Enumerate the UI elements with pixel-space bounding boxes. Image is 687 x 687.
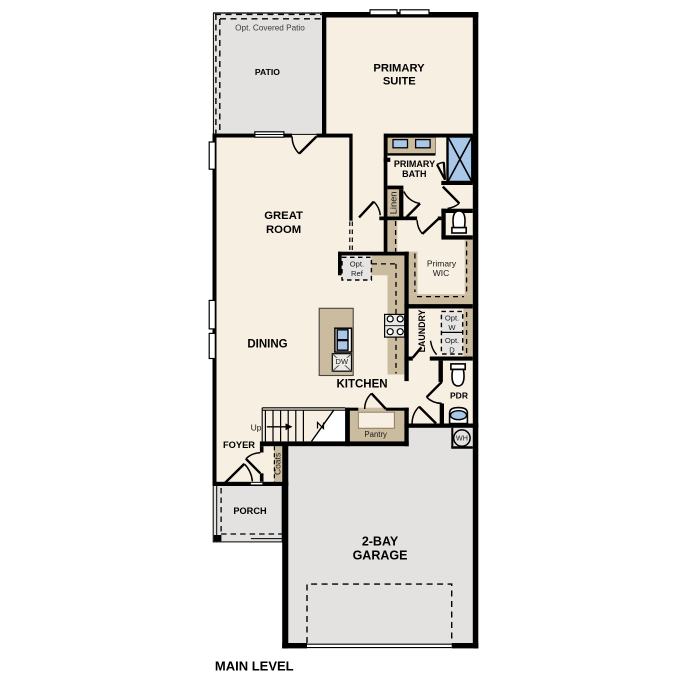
svg-text:Pantry: Pantry [364,430,387,439]
svg-text:2-BAY: 2-BAY [362,535,399,549]
svg-text:WIC: WIC [433,268,450,278]
svg-text:Linen: Linen [388,192,398,215]
svg-text:FOYER: FOYER [223,440,255,450]
svg-text:PORCH: PORCH [233,506,267,516]
svg-text:KITCHEN: KITCHEN [336,378,387,390]
svg-text:Coats: Coats [272,453,282,475]
svg-text:Opt.: Opt. [350,260,364,269]
svg-text:D: D [449,345,455,354]
svg-text:Opt.: Opt. [445,314,459,323]
svg-text:ROOM: ROOM [266,224,301,236]
svg-text:PATIO: PATIO [255,67,280,77]
svg-text:PRIMARY: PRIMARY [394,159,435,169]
svg-text:Opt. Covered Patio: Opt. Covered Patio [235,24,305,33]
svg-text:Up: Up [251,423,262,433]
svg-text:PDR: PDR [450,390,468,400]
svg-text:Ref: Ref [351,269,364,278]
svg-text:Opt.: Opt. [445,336,459,345]
svg-text:WH: WH [456,434,468,443]
svg-text:MAIN LEVEL: MAIN LEVEL [215,659,294,674]
svg-text:DW: DW [336,357,349,366]
svg-text:BATH: BATH [402,169,426,179]
svg-text:LAUNDRY: LAUNDRY [417,310,427,353]
svg-text:GREAT: GREAT [264,210,303,222]
svg-text:SUITE: SUITE [383,76,416,88]
svg-text:GARAGE: GARAGE [353,549,408,563]
svg-text:W: W [448,323,456,332]
svg-text:DINING: DINING [247,339,287,351]
svg-text:PRIMARY: PRIMARY [373,62,425,74]
svg-text:Primary: Primary [427,259,457,269]
